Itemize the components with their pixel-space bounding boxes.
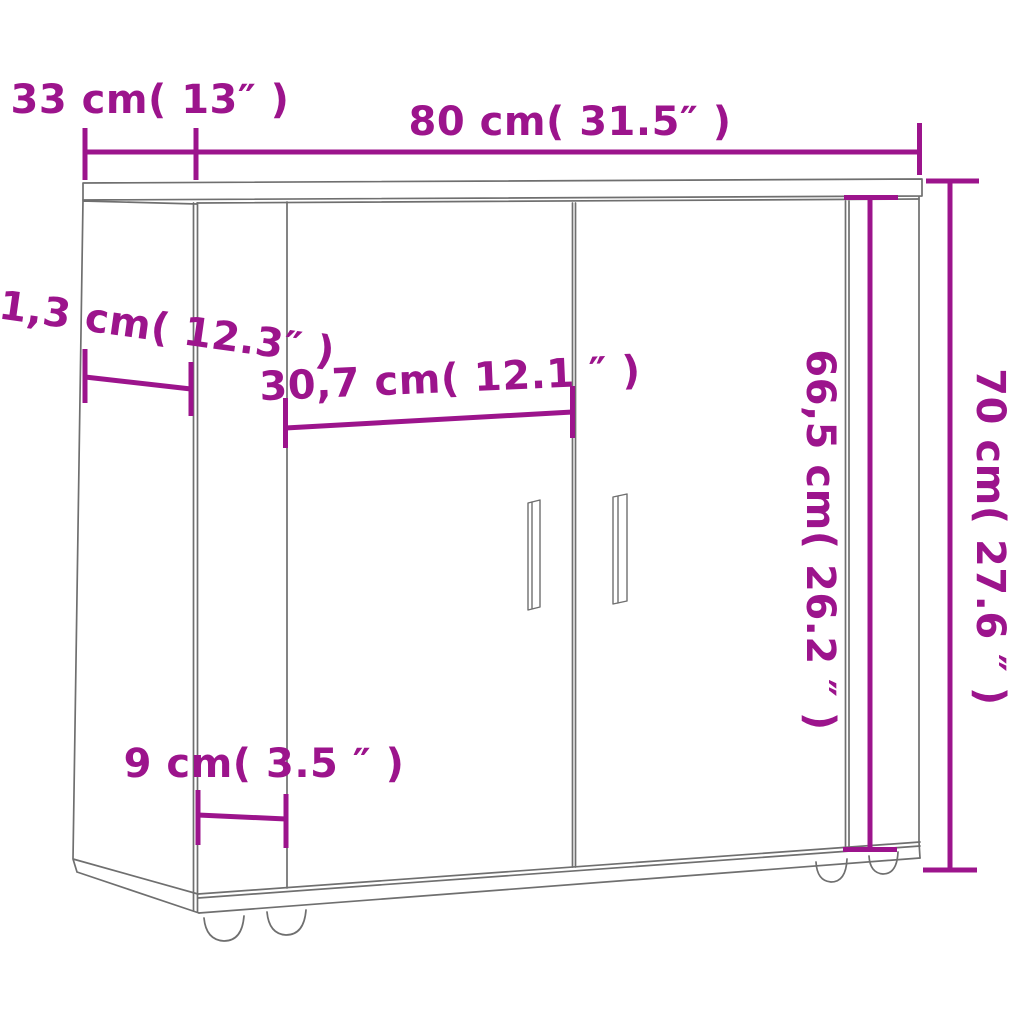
dim-stile-width-label: 9 cm( 3.5 ″ ) [124,744,405,784]
dim-inner-height-line [843,198,898,850]
dimension-diagram: 33 cm( 13″ ) 80 cm( 31.5″ ) 31,3 cm( 12.… [0,0,1024,1024]
dim-depth-top-label: 33 cm( 13″ ) [11,80,290,120]
cabinet-foot-3 [816,859,847,882]
left-door-handle [528,500,540,610]
dim-total-height-label: 70 cm( 27.6 ″ ) [970,368,1010,705]
dim-width-top-label: 80 cm( 31.5″ ) [409,102,732,142]
cabinet-foot-4 [869,852,898,874]
dim-inner-height-label: 66,5 cm( 26.2 ″ ) [800,349,840,730]
cabinet-top-panel [83,179,922,200]
cabinet-door-bottom-edge [198,842,920,898]
cabinet-foot-2 [267,910,306,935]
cabinet-foot-1 [204,916,244,941]
cabinet-door-gap [573,203,576,867]
cabinet-right-door-edge [846,201,850,848]
dim-stile-width-line [198,790,286,848]
right-door-handle [613,494,627,604]
dim-depth-side-line [85,349,191,416]
cabinet-line-drawing [0,0,1024,1024]
cabinet-right-edge [919,197,920,858]
